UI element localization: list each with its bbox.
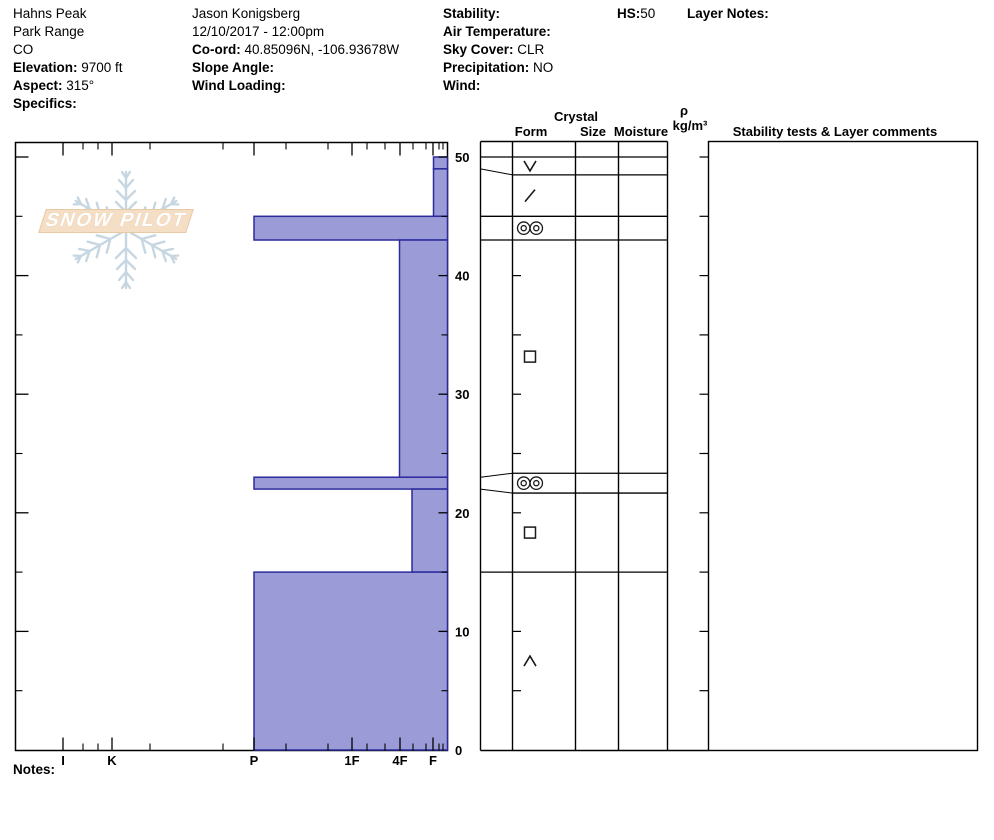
x-axis-label-K: K [107, 753, 117, 768]
grain-form-symbol-MFcr [534, 226, 539, 231]
y-axis-label-40: 40 [455, 269, 469, 284]
x-axis-label-4F: 4F [392, 753, 407, 768]
col-header-density: ρ [670, 103, 698, 118]
y-axis-label-20: 20 [455, 506, 469, 521]
layer-bar-4F- [412, 489, 448, 572]
x-axis-label-F: F [429, 753, 437, 768]
grain-form-symbol-MFcr [534, 481, 539, 486]
x-axis-label-I: I [61, 753, 65, 768]
col-header-density-units: kg/m³ [668, 118, 712, 133]
x-axis-label-1F: 1F [344, 753, 359, 768]
grain-form-symbol-DF [525, 190, 535, 202]
col-header-moisture: Moisture [609, 124, 673, 139]
depth-leader-line [481, 169, 513, 175]
layer-bar-F [434, 169, 448, 216]
depth-leader-line [481, 489, 513, 493]
layer-bar-P [254, 477, 448, 489]
y-axis-label-50: 50 [455, 150, 469, 165]
layer-bar-F [434, 157, 448, 169]
y-axis-label-10: 10 [455, 624, 469, 639]
depth-leader-line [481, 473, 513, 477]
grain-form-symbol-SH [524, 161, 536, 171]
grain-form-symbol-MFcr [521, 226, 526, 231]
snowpilot-profile-page: Hahns PeakPark RangeCOElevation: 9700 ft… [0, 0, 994, 840]
grain-form-symbol-FC [525, 351, 536, 362]
comments-box [709, 142, 978, 751]
grain-form-symbol-FC [525, 527, 536, 538]
grain-form-symbol-MFcr [521, 481, 526, 486]
grain-form-symbol-MFcr [530, 477, 542, 489]
col-header-form: Form [507, 124, 555, 139]
grain-form-symbol-MFcr [530, 222, 542, 234]
y-axis-label-0: 0 [455, 743, 462, 758]
col-header-comments: Stability tests & Layer comments [708, 124, 962, 139]
layer-bar-P [254, 216, 448, 240]
col-header-crystal: Crystal [548, 109, 604, 124]
grain-form-symbol-MFcr [518, 477, 530, 489]
layer-bar-P [254, 572, 448, 750]
x-axis-label-P: P [250, 753, 259, 768]
grain-form-symbol-MFcr [518, 222, 530, 234]
notes-label: Notes: [13, 762, 55, 777]
y-axis-label-30: 30 [455, 387, 469, 402]
grain-form-symbol-DH [524, 656, 536, 666]
